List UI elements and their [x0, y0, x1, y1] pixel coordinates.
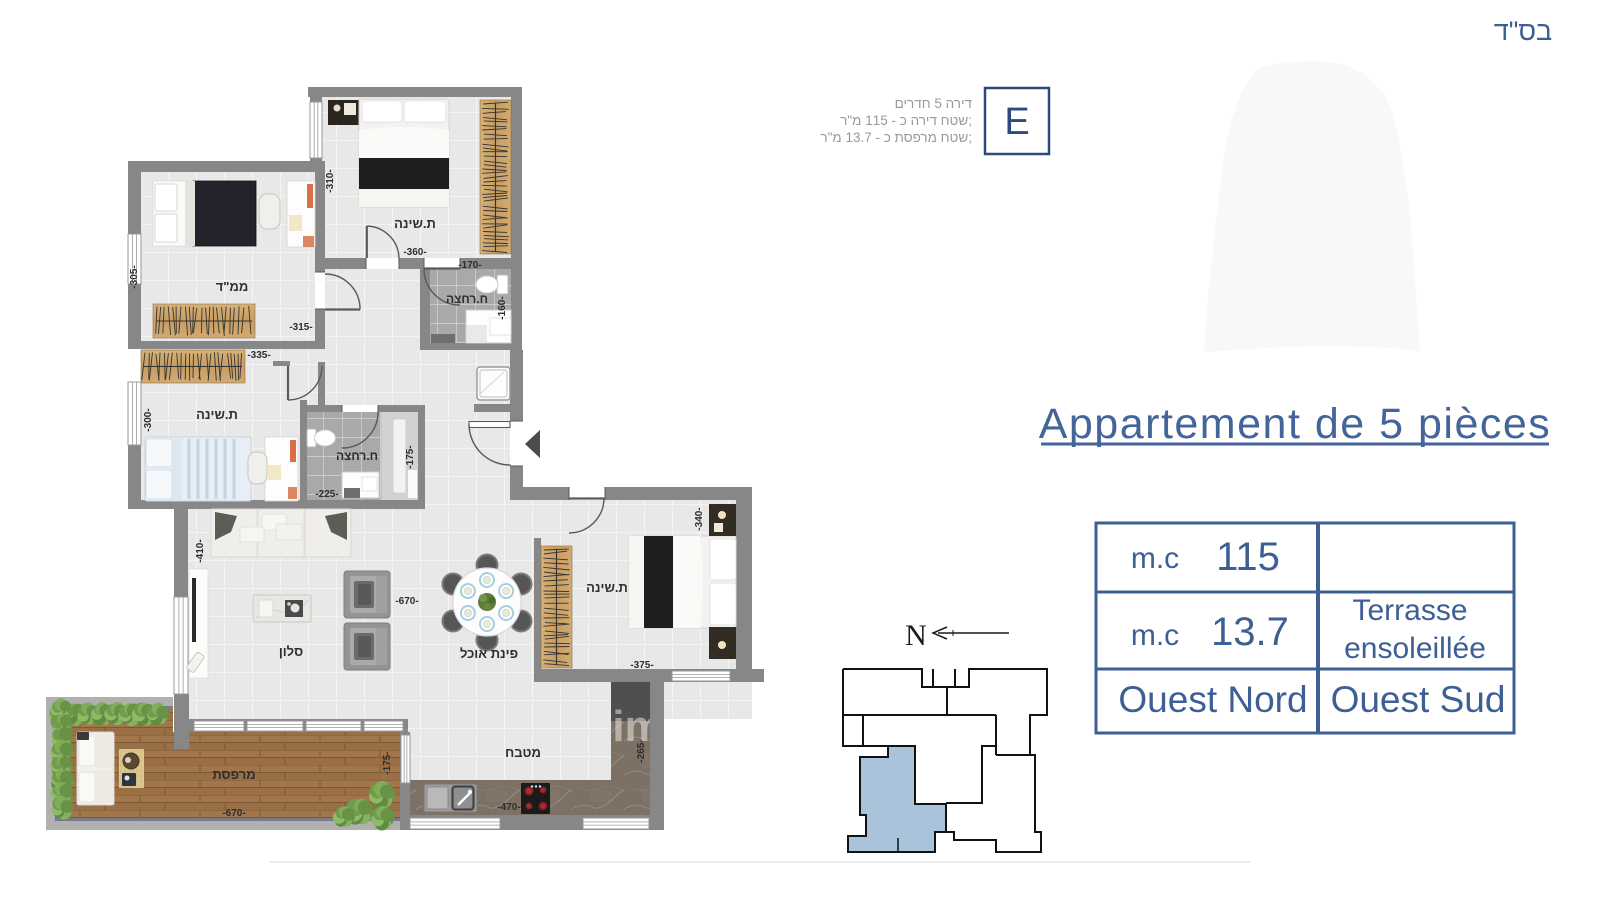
svg-text:-670-: -670- — [222, 808, 245, 819]
svg-text:Ouest Nord: Ouest Nord — [1118, 679, 1307, 720]
svg-text:13.7: 13.7 — [1211, 610, 1289, 654]
svg-text:-375-: -375- — [630, 660, 653, 671]
svg-text:ח.רחצה: ח.רחצה — [446, 292, 488, 306]
svg-text:-160-: -160- — [497, 296, 508, 319]
svg-text:-175-: -175- — [405, 445, 416, 468]
svg-text:-300-: -300- — [143, 408, 154, 431]
svg-text:סלון: סלון — [279, 644, 303, 659]
svg-text:בס"ד: בס"ד — [1494, 16, 1552, 46]
svg-text:-305-: -305- — [129, 265, 140, 288]
svg-text:-670-: -670- — [395, 596, 418, 607]
svg-text:ת.שינה: ת.שינה — [196, 407, 238, 422]
svg-text:פינת אוכל: פינת אוכל — [460, 646, 518, 661]
svg-text:-225-: -225- — [315, 489, 338, 500]
svg-text:m.c: m.c — [1131, 542, 1179, 575]
svg-text:מטבח: מטבח — [505, 745, 541, 760]
svg-text:מרפסת: מרפסת — [212, 767, 255, 782]
svg-text:-170-: -170- — [458, 260, 481, 271]
svg-text:Ouest Sud: Ouest Sud — [1331, 679, 1506, 720]
svg-text:-410-: -410- — [195, 539, 206, 562]
svg-text:-175-: -175- — [382, 751, 393, 774]
svg-text:E: E — [1004, 101, 1029, 143]
svg-text:Terrasse: Terrasse — [1352, 594, 1467, 627]
svg-text:ממ"ד: ממ"ד — [216, 279, 249, 294]
svg-text:דירה 5 חדרים: דירה 5 חדרים — [895, 96, 973, 111]
svg-text:m.c: m.c — [1131, 619, 1179, 652]
svg-text:N: N — [905, 619, 927, 652]
svg-text:ח.רחצה: ח.רחצה — [336, 449, 378, 463]
svg-text:ensoleillée: ensoleillée — [1344, 632, 1486, 665]
svg-text:Appartement de 5 pièces: Appartement de 5 pièces — [1039, 400, 1552, 448]
svg-text:ת.שינה: ת.שינה — [586, 580, 628, 595]
svg-text:-360-: -360- — [403, 247, 426, 258]
svg-text:שטח מרפסת כ - 13.7 מ"ר;: שטח מרפסת כ - 13.7 מ"ר; — [820, 130, 972, 145]
svg-text:ת.שינה: ת.שינה — [394, 216, 436, 231]
svg-text:-470-: -470- — [497, 802, 520, 813]
svg-text:-340-: -340- — [694, 507, 705, 530]
svg-text:115: 115 — [1216, 535, 1280, 579]
svg-text:שטח דירה כ - 115 מ"ר;: שטח דירה כ - 115 מ"ר; — [840, 113, 972, 128]
svg-text:-310-: -310- — [325, 169, 336, 192]
svg-text:-315-: -315- — [289, 322, 312, 333]
svg-text:-335-: -335- — [247, 350, 270, 361]
